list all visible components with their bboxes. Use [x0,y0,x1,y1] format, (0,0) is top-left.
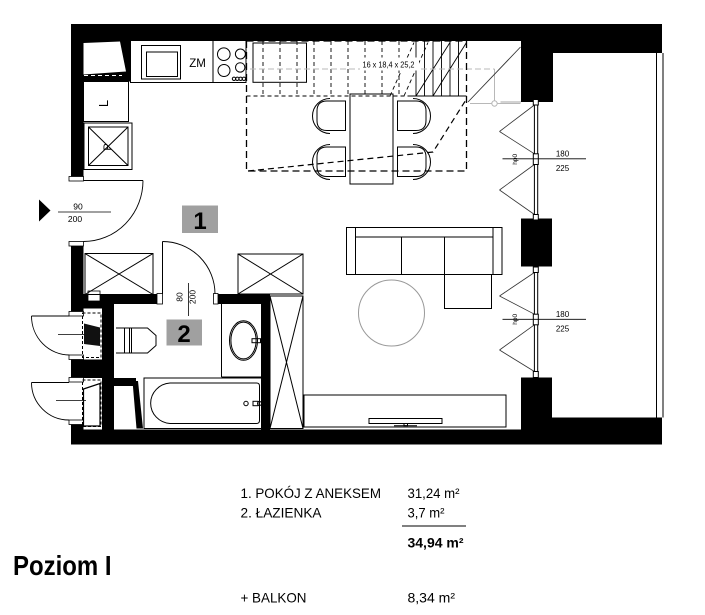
svg-text:16 x 18,4 x 25,2: 16 x 18,4 x 25,2 [363,61,415,70]
svg-text:225: 225 [556,164,570,173]
svg-text:180: 180 [556,150,570,159]
svg-text:200: 200 [188,290,198,304]
svg-text:225: 225 [556,325,570,334]
svg-text:1: 1 [193,208,206,235]
svg-text:Poziom I: Poziom I [13,550,112,581]
svg-text:hp0: hp0 [512,153,519,164]
svg-text:90: 90 [73,202,83,212]
svg-text:+ BALKON: + BALKON [241,590,307,606]
svg-text:ZM: ZM [189,58,206,70]
svg-text:2: 2 [177,321,190,348]
svg-text:34,94 m²: 34,94 m² [408,535,464,551]
svg-text:200: 200 [68,214,82,224]
svg-text:3,7 m²: 3,7 m² [408,505,445,521]
svg-text:180: 180 [556,310,570,319]
svg-text:L: L [96,100,111,107]
svg-text:31,24 m²: 31,24 m² [408,485,460,501]
svg-text:80: 80 [175,292,185,302]
svg-text:hp0: hp0 [512,313,519,324]
svg-text:1. POKÓJ Z ANEKSEM: 1. POKÓJ Z ANEKSEM [241,485,382,501]
svg-text:2. ŁAZIENKA: 2. ŁAZIENKA [241,505,323,521]
svg-text:P: P [102,143,114,150]
svg-text:8,34 m²: 8,34 m² [408,590,456,606]
